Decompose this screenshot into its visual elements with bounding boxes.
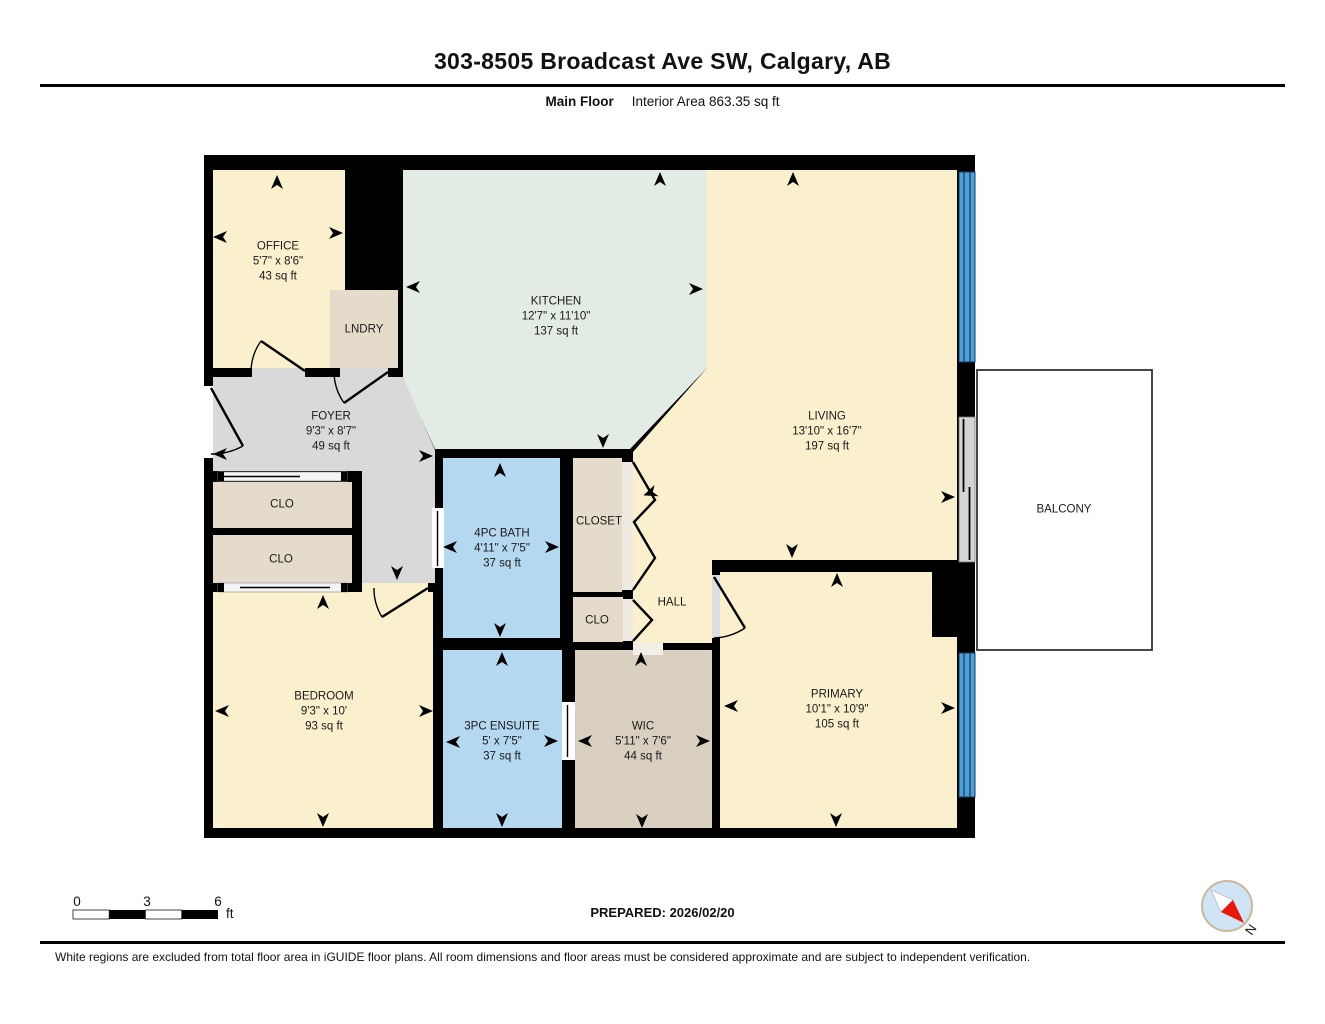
balcony-sliding-door — [959, 417, 975, 562]
room-label-clo3: CLO — [585, 614, 609, 629]
disclaimer-text: White regions are excluded from total fl… — [55, 950, 1030, 964]
room-label-clo2: CLO — [269, 553, 293, 568]
room-label-balcony: BALCONY — [1037, 503, 1092, 518]
floor-plan-svg — [0, 0, 1325, 1024]
window-living — [959, 172, 975, 362]
room-label-clo1: CLO — [270, 498, 294, 513]
room-label-hall: HALL — [658, 596, 687, 611]
room-label-bedroom: BEDROOM9'3" x 10'93 sq ft — [294, 690, 353, 735]
office-opening — [252, 368, 305, 377]
wic-opening — [633, 643, 663, 655]
room-label-bath: 4PC BATH4'11" x 7'5"37 sq ft — [474, 527, 530, 572]
room-label-wic: WIC5'11" x 7'6"44 sq ft — [615, 720, 671, 765]
room-label-primary: PRIMARY10'1" x 10'9"105 sq ft — [805, 688, 868, 733]
window-primary — [959, 653, 975, 797]
room-label-closet: CLOSET — [576, 515, 622, 530]
entry-opening — [203, 386, 213, 458]
room-label-foyer: FOYER9'3" x 8'7"49 sq ft — [306, 410, 356, 455]
ensuite-opening — [562, 702, 575, 760]
room-label-living: LIVING13'10" x 16'7"197 sq ft — [792, 410, 861, 455]
closet-opening — [622, 462, 633, 590]
bedroom-opening — [362, 583, 428, 592]
footer-divider — [40, 941, 1285, 944]
clo3-opening — [623, 599, 633, 641]
room-label-lndry: LNDRY — [345, 323, 384, 338]
room-label-ensuite: 3PC ENSUITE5' x 7'5"37 sq ft — [464, 720, 539, 765]
room-label-kitchen: KITCHEN12'7" x 11'10"137 sq ft — [522, 295, 591, 340]
room-label-office: OFFICE5'7" x 8'6"43 sq ft — [253, 240, 303, 285]
floor-plan: OFFICE5'7" x 8'6"43 sq ft LNDRY KITCHEN1… — [0, 0, 1325, 1024]
prepared-date: PREPARED: 2026/02/20 — [0, 905, 1325, 920]
